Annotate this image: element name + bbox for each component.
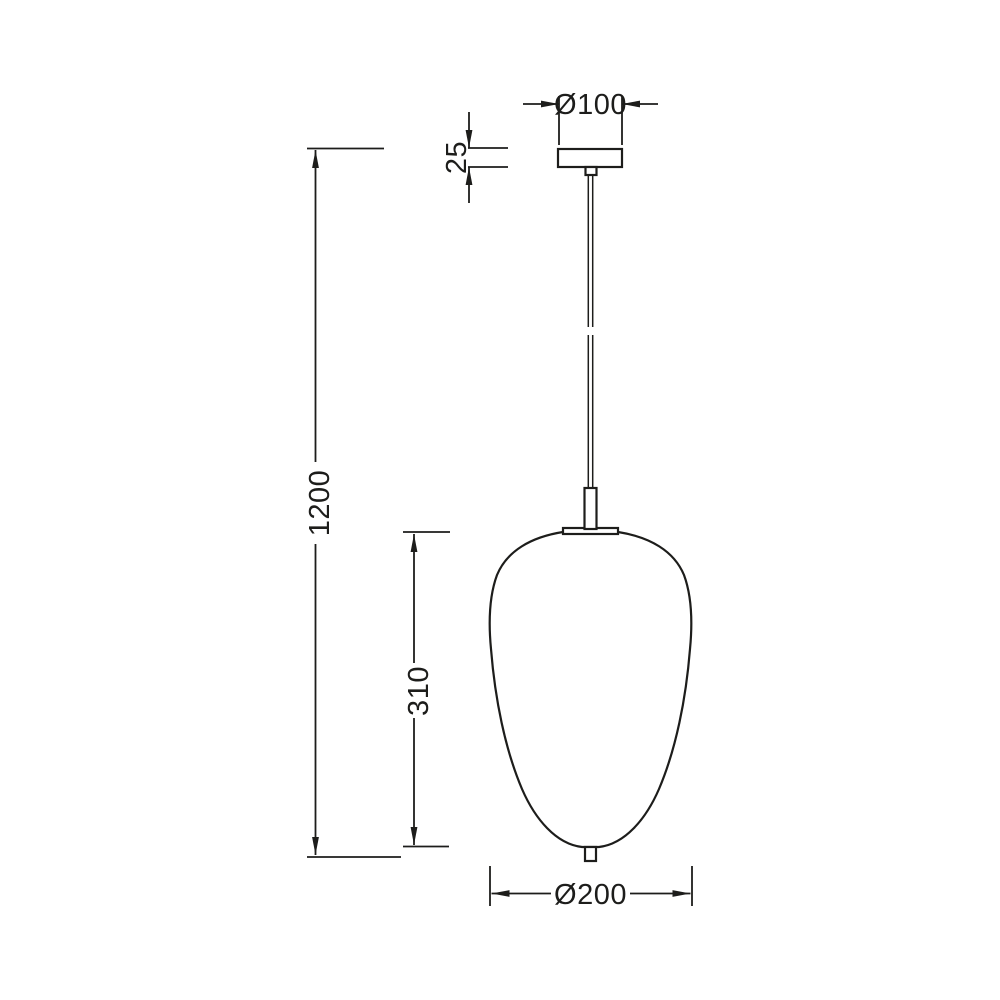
ceiling-canopy [558, 149, 622, 167]
pendant-lamp [490, 149, 692, 861]
dim-overall-height: 1200 [304, 149, 401, 858]
dim-arrowhead [492, 890, 510, 897]
dim-arrowhead [411, 534, 418, 552]
dim-label-canopy-diameter: Ø100 [554, 89, 627, 121]
cord-stem [585, 488, 597, 529]
suspension-cord-lower [588, 335, 592, 488]
dim-label-overall-height: 1200 [304, 470, 336, 537]
dim-arrowhead [312, 837, 319, 855]
dim-arrowhead [673, 890, 691, 897]
dim-canopy-height: 25 [441, 112, 508, 203]
dim-shade-height: 310 [403, 532, 450, 847]
dim-arrowhead [411, 827, 418, 845]
pendant-lamp-drawing-canvas: Ø100 25 1200 [0, 0, 1000, 1000]
glass-shade [490, 532, 692, 847]
dim-canopy-diameter: Ø100 [523, 89, 658, 145]
dim-shade-diameter: Ø200 [490, 866, 692, 911]
canopy-cord-connector [586, 167, 597, 175]
dim-label-shade-height: 310 [403, 666, 435, 716]
bottom-finial [585, 847, 596, 861]
dimension-drawing: Ø100 25 1200 [0, 0, 1000, 1000]
dim-arrowhead [312, 150, 319, 168]
dim-label-shade-diameter: Ø200 [554, 879, 627, 911]
dim-label-canopy-height: 25 [441, 141, 473, 174]
suspension-cord-upper [588, 175, 592, 327]
